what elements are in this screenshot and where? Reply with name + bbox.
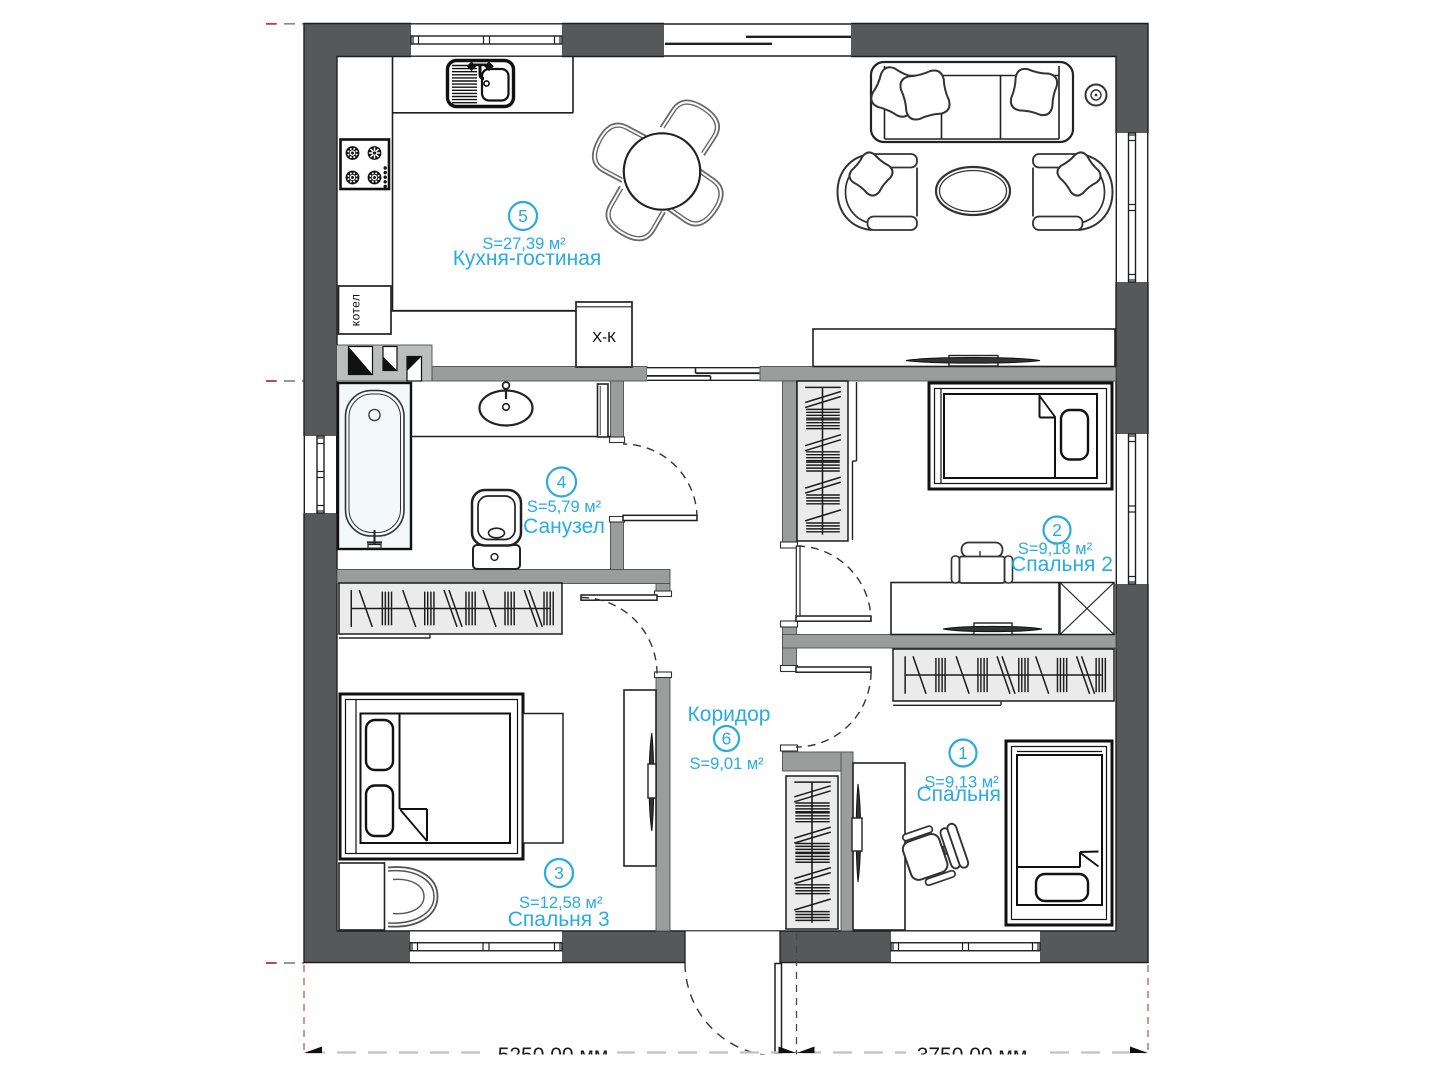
svg-text:3: 3 (554, 863, 564, 883)
svg-text:6: 6 (722, 729, 732, 749)
svg-text:Коридор: Коридор (688, 703, 771, 726)
svg-text:5: 5 (518, 206, 528, 226)
svg-text:Спальня: Спальня (917, 783, 1001, 806)
svg-text:Санузел: Санузел (523, 515, 605, 538)
svg-text:Спальня 3: Спальня 3 (508, 908, 610, 931)
svg-text:Кухня-гостиная: Кухня-гостиная (453, 247, 602, 270)
svg-text:S=9,01 м²: S=9,01 м² (690, 755, 765, 773)
svg-text:S=5,79 м²: S=5,79 м² (527, 498, 602, 516)
svg-text:котел: котел (349, 294, 363, 326)
svg-text:Х-К: Х-К (592, 329, 616, 346)
svg-text:1: 1 (958, 743, 968, 763)
svg-text:2: 2 (1052, 520, 1062, 540)
svg-text:Спальня 2: Спальня 2 (1011, 553, 1113, 576)
svg-text:4: 4 (557, 472, 567, 492)
